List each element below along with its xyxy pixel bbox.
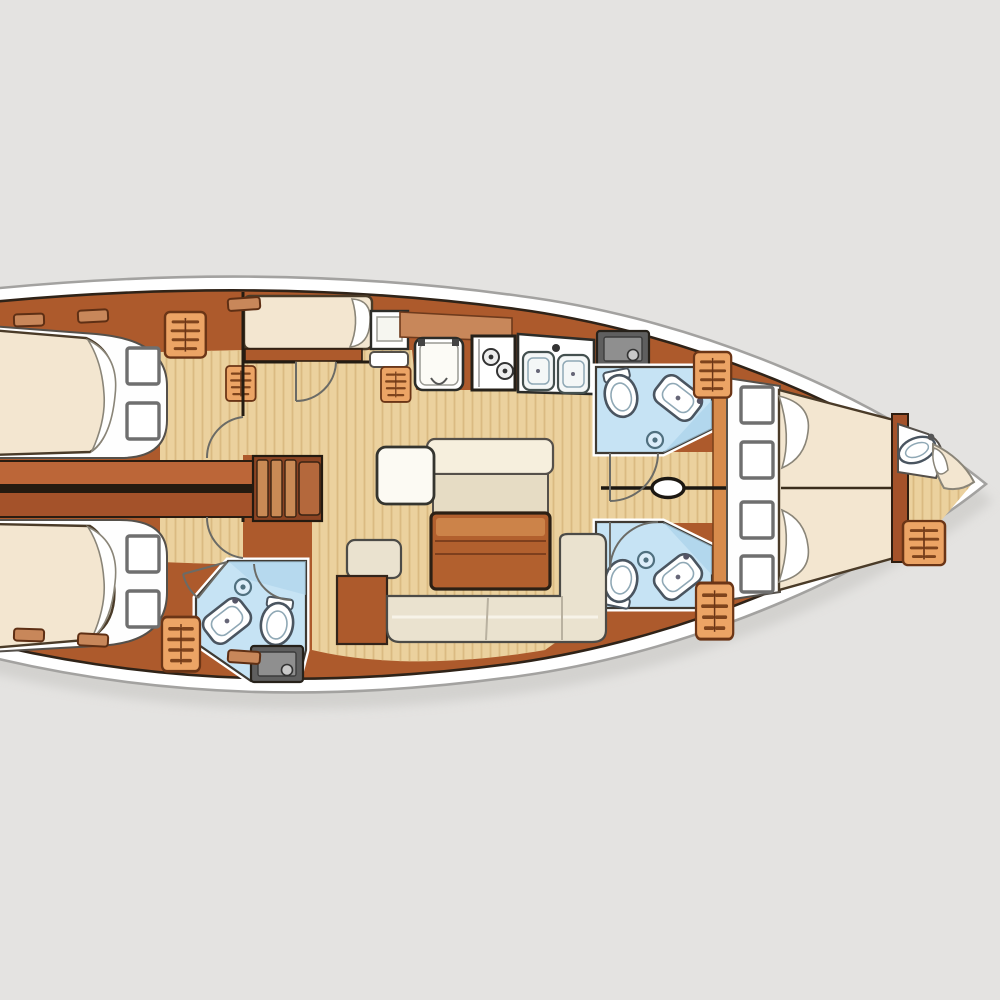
hull-window — [741, 556, 773, 592]
hull-window — [127, 536, 159, 572]
vanity-faucet — [928, 434, 935, 441]
fridge-icon — [415, 338, 463, 390]
engine-box-rail-top — [0, 461, 253, 486]
salon-side-table — [377, 447, 434, 504]
chart-table-top — [377, 317, 402, 341]
wardrobe-icon — [381, 367, 411, 402]
stove-icon — [472, 336, 515, 390]
hull-window — [127, 591, 159, 627]
berth-front-board — [245, 349, 362, 361]
hull-window — [127, 348, 159, 384]
yacht-floor-plan — [0, 0, 1000, 1000]
aft-cabin-port — [0, 326, 167, 458]
wardrobe-icon — [226, 366, 256, 401]
shower-drain-icon — [235, 579, 251, 595]
wardrobe-icon — [162, 617, 200, 671]
salon-cabinet — [337, 576, 387, 644]
screenshot-canvas — [0, 0, 1000, 1000]
settee-end-cushion — [347, 540, 401, 578]
mast-icon — [652, 479, 684, 498]
shower-drain-icon — [638, 552, 654, 568]
hull-window — [127, 403, 159, 439]
galley-sink-icon — [518, 334, 594, 394]
hull-window — [741, 502, 773, 538]
hull-window — [741, 387, 773, 423]
hull-window — [741, 442, 773, 478]
step-landing — [299, 462, 320, 515]
step-tread — [257, 460, 268, 517]
wardrobe-icon — [694, 352, 731, 398]
step-tread — [285, 460, 296, 517]
deck-hatch-icon — [597, 331, 649, 367]
salon-bench-back — [427, 439, 553, 474]
engine-box-centerline — [0, 484, 253, 493]
chart-seat — [370, 352, 408, 367]
shower-drain-icon — [647, 432, 663, 448]
companionway — [0, 456, 322, 521]
salon-bench-seat — [433, 474, 548, 515]
wardrobe-icon — [696, 583, 733, 639]
wardrobe-icon — [903, 521, 945, 565]
wardrobe-icon — [165, 312, 206, 358]
step-tread — [271, 460, 282, 517]
salon-table — [431, 513, 550, 589]
head-forward-starboard — [596, 522, 712, 610]
engine-box-rail-bottom — [0, 491, 253, 517]
